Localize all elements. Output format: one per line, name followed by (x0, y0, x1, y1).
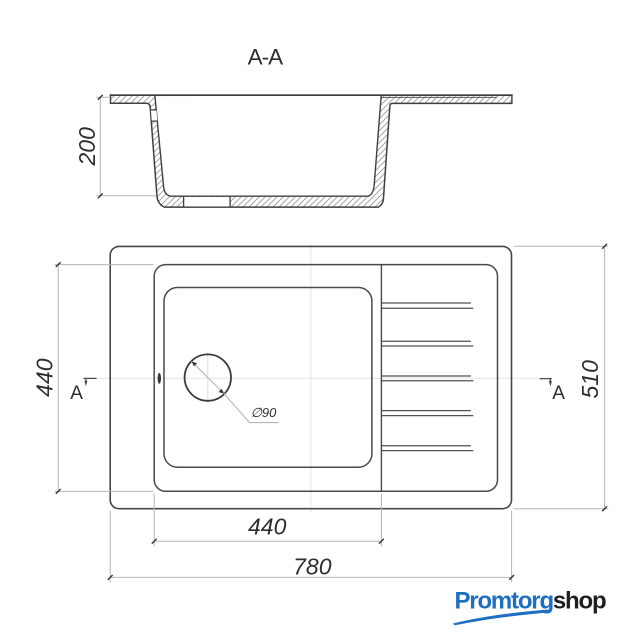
svg-text:200: 200 (74, 127, 100, 167)
svg-text:A: A (552, 383, 565, 404)
svg-text:510: 510 (577, 360, 603, 399)
svg-text:440: 440 (248, 513, 287, 539)
svg-text:A: A (70, 383, 83, 404)
svg-text:780: 780 (293, 554, 332, 580)
svg-text:A-A: A-A (248, 45, 284, 70)
svg-text:∅90: ∅90 (251, 405, 278, 420)
svg-text:Promtorgshop: Promtorgshop (455, 588, 606, 615)
svg-text:440: 440 (32, 358, 58, 397)
